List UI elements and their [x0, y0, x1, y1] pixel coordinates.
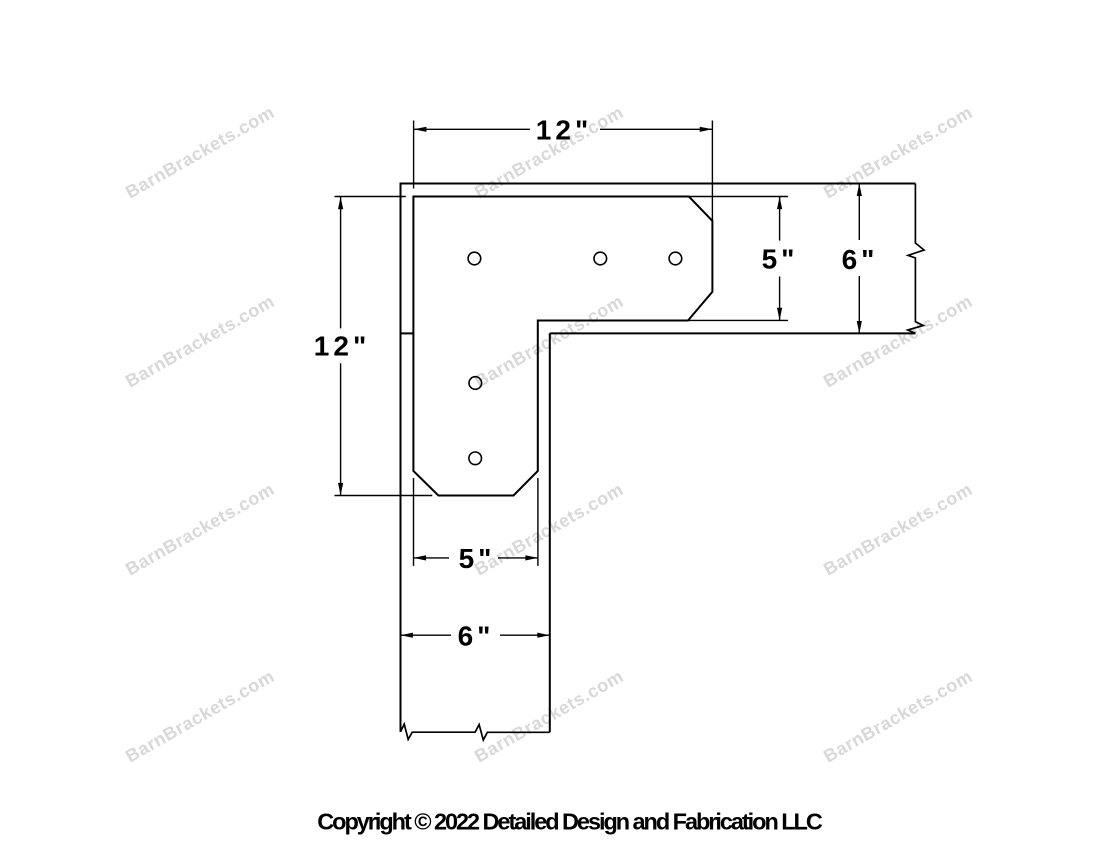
svg-text:Copyright © 2022 Detailed Desi: Copyright © 2022 Detailed Design and Fab…: [317, 809, 823, 835]
svg-text:6": 6": [842, 244, 875, 275]
svg-text:5": 5": [762, 244, 795, 275]
svg-text:6": 6": [458, 620, 491, 651]
svg-text:12": 12": [536, 115, 588, 146]
svg-text:12": 12": [314, 331, 366, 362]
svg-text:5": 5": [459, 543, 492, 574]
